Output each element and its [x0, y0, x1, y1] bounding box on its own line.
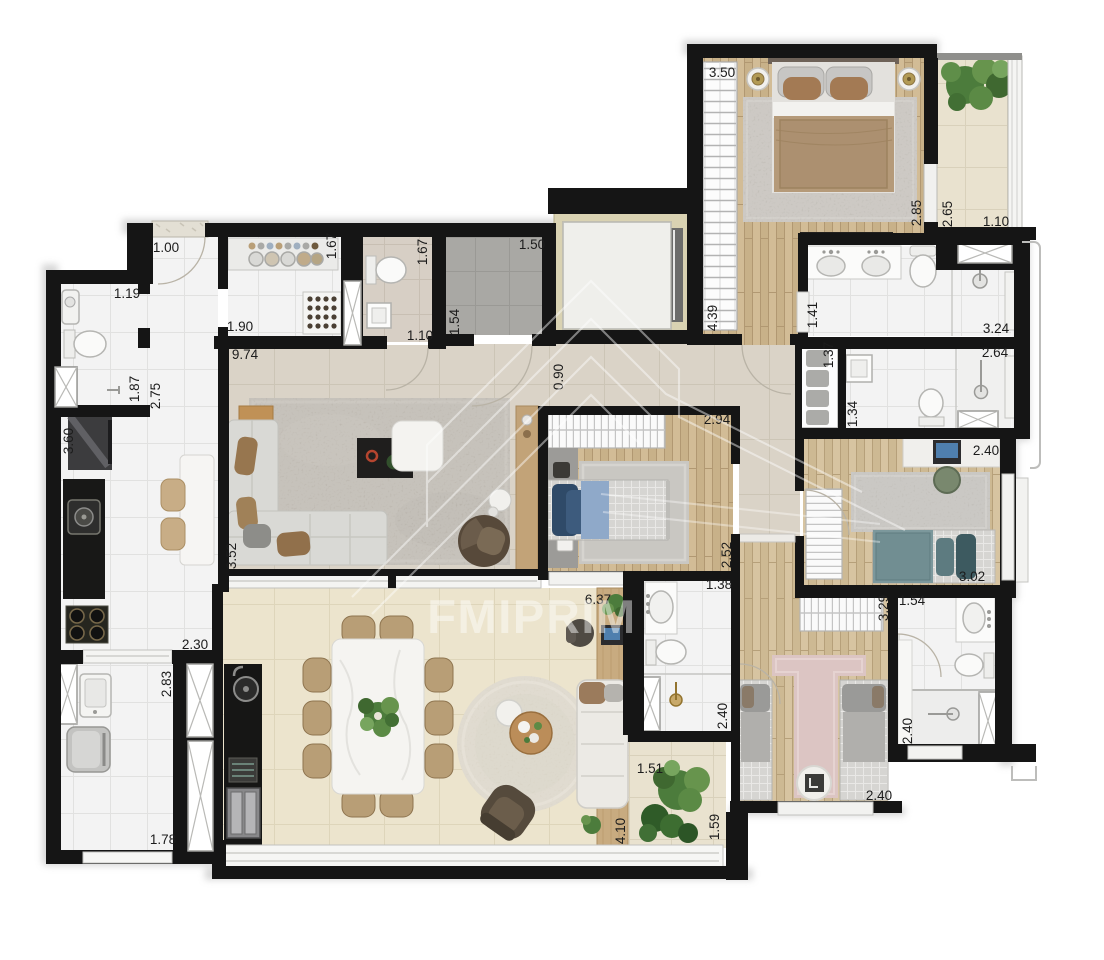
- svg-text:2.30: 2.30: [182, 637, 208, 652]
- svg-text:2.52: 2.52: [719, 542, 734, 568]
- svg-text:3.50: 3.50: [709, 65, 735, 80]
- svg-text:1.41: 1.41: [805, 302, 820, 328]
- svg-text:1.87: 1.87: [127, 376, 142, 402]
- svg-text:3.02: 3.02: [959, 569, 985, 584]
- svg-text:4.10: 4.10: [613, 818, 628, 844]
- svg-text:2.64: 2.64: [982, 345, 1009, 360]
- svg-text:2.75: 2.75: [148, 383, 163, 409]
- svg-text:2.83: 2.83: [159, 671, 174, 697]
- svg-text:1.37: 1.37: [821, 342, 836, 368]
- svg-text:2.40: 2.40: [866, 788, 892, 803]
- svg-text:1.67: 1.67: [324, 233, 339, 259]
- svg-text:2.40: 2.40: [900, 718, 915, 744]
- svg-text:1.10: 1.10: [407, 328, 433, 343]
- svg-text:1.38: 1.38: [706, 577, 732, 592]
- svg-text:1.54: 1.54: [899, 593, 926, 608]
- svg-text:1.90: 1.90: [227, 319, 253, 334]
- svg-text:2.40: 2.40: [715, 703, 730, 729]
- svg-text:4.39: 4.39: [705, 305, 720, 331]
- svg-text:1.10: 1.10: [983, 214, 1009, 229]
- svg-text:1.19: 1.19: [114, 286, 140, 301]
- svg-text:FMIPRIM: FMIPRIM: [427, 590, 637, 643]
- svg-text:1.00: 1.00: [153, 240, 179, 255]
- svg-text:1.34: 1.34: [845, 400, 860, 427]
- svg-text:1.51: 1.51: [637, 761, 663, 776]
- svg-text:3.29: 3.29: [876, 595, 891, 621]
- svg-text:1.67: 1.67: [415, 239, 430, 265]
- svg-text:2.65: 2.65: [940, 201, 955, 227]
- svg-text:0.90: 0.90: [551, 364, 566, 390]
- svg-text:3.24: 3.24: [983, 321, 1010, 336]
- svg-text:1.59: 1.59: [707, 814, 722, 840]
- svg-text:1.54: 1.54: [447, 308, 462, 335]
- svg-text:2.85: 2.85: [909, 200, 924, 226]
- svg-text:1.50: 1.50: [519, 237, 545, 252]
- svg-text:9.74: 9.74: [232, 347, 259, 362]
- svg-text:3.60: 3.60: [61, 428, 76, 454]
- svg-text:2.40: 2.40: [973, 443, 999, 458]
- svg-text:1.78: 1.78: [150, 832, 176, 847]
- svg-text:3.52: 3.52: [224, 543, 239, 569]
